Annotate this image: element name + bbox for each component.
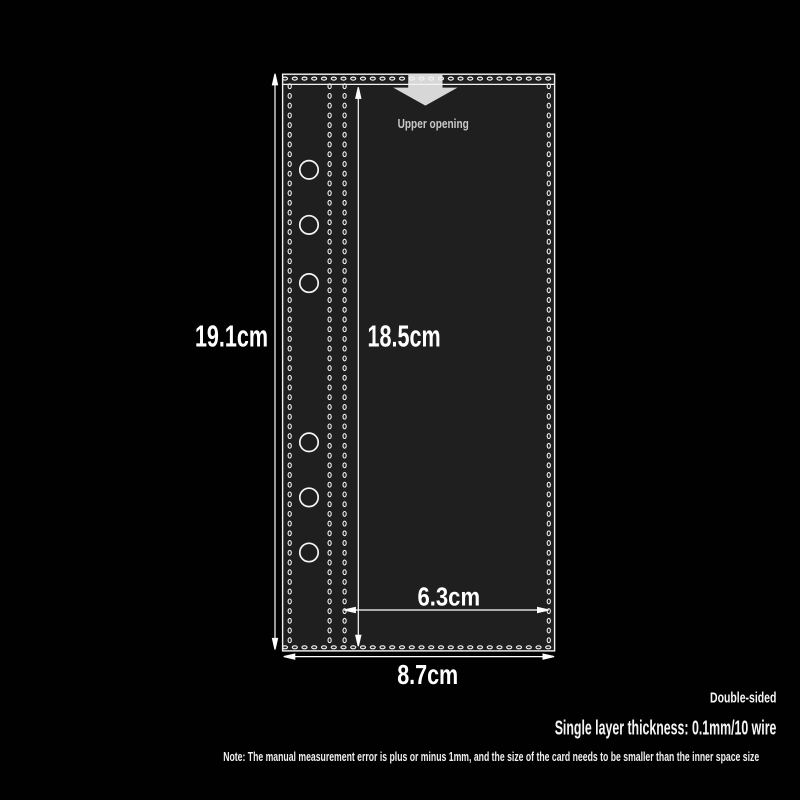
svg-text:Upper opening: Upper opening <box>398 116 469 131</box>
svg-text:6.3cm: 6.3cm <box>418 582 481 612</box>
svg-text:18.5cm: 18.5cm <box>368 318 441 353</box>
svg-text:Single layer thickness: 0.1mm/: Single layer thickness: 0.1mm/10 wire <box>555 718 777 740</box>
svg-text:19.1cm: 19.1cm <box>195 318 268 353</box>
svg-text:8.7cm: 8.7cm <box>397 659 458 690</box>
svg-text:Double-sided: Double-sided <box>710 690 776 706</box>
svg-text:Note: The manual measurement e: Note: The manual measurement error is pl… <box>223 749 759 764</box>
